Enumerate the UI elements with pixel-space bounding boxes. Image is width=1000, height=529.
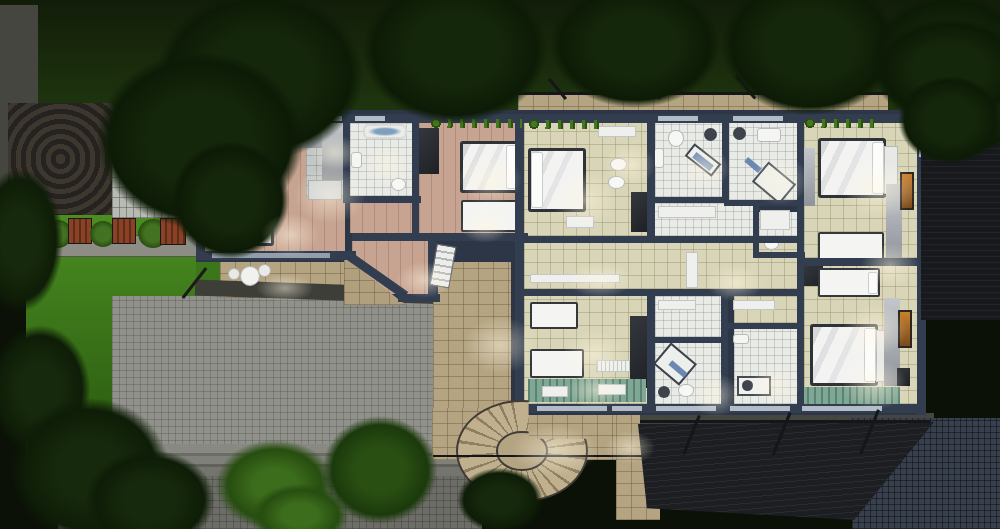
- tree-over-gazebo: [150, 120, 310, 280]
- bedroomJ-rug: [800, 387, 900, 405]
- window-bottom-5: [802, 406, 882, 411]
- wall-E-left: [797, 123, 804, 263]
- wall-bath1-bottom: [343, 196, 421, 203]
- roomF-wardrobe: [630, 316, 647, 388]
- bathI-sink: [733, 334, 749, 344]
- wall-B-C: [722, 123, 729, 203]
- wall-corridor-bottom: [519, 289, 803, 296]
- corridor-counter: [530, 274, 620, 283]
- wall-main-left: [515, 114, 524, 414]
- bathC-machine-1: [704, 128, 717, 141]
- bedroomJ-single-pillow: [868, 272, 878, 294]
- bathH-basin: [658, 386, 670, 398]
- bathB-sink: [654, 148, 664, 168]
- roomA-bidet: [608, 176, 625, 189]
- roomA-pillow: [531, 152, 543, 208]
- bedroomJ-picture: [898, 310, 912, 348]
- wall-rooms-bottom: [352, 233, 528, 241]
- wall-A-B: [647, 123, 655, 239]
- wall-G-bottom: [651, 337, 727, 343]
- bedroomE-picture: [900, 172, 914, 210]
- roomF-towel-1: [542, 386, 568, 397]
- wall-GH-right: [721, 289, 728, 407]
- window-bottom-2: [612, 406, 642, 411]
- roomA-table: [566, 216, 594, 228]
- terrace-rail-bottom: [433, 455, 648, 457]
- wcD-shelf: [760, 210, 790, 230]
- bedroomE-console: [804, 148, 815, 206]
- stub-shelf: [733, 300, 775, 310]
- wall-I-top: [727, 323, 797, 329]
- floor-plan-render: [0, 0, 1000, 529]
- roomF-single-bed-1: [530, 302, 578, 329]
- roomF-single-bed-2: [530, 349, 584, 378]
- bathG-shelf: [658, 300, 696, 310]
- bathC-machine-2: [733, 127, 746, 140]
- bathB-toilet: [668, 130, 684, 147]
- bedroomJ-pillow: [864, 328, 876, 382]
- roomA-toilet: [610, 158, 627, 171]
- window-bottom-3: [656, 406, 716, 411]
- wall-J-left: [797, 258, 804, 408]
- wall-corridor-top: [519, 236, 803, 243]
- wall-D-left: [753, 206, 759, 258]
- bathH-toilet: [678, 384, 694, 397]
- nook-floor: [350, 203, 412, 233]
- roomF-towel-2: [598, 384, 626, 395]
- roomF-radiator: [596, 360, 630, 372]
- bedroomE-pillow: [872, 142, 884, 194]
- bathI-basin: [742, 380, 753, 391]
- wall-F-right: [647, 289, 655, 407]
- window-bottom-4: [730, 406, 790, 411]
- bath1-toilet: [391, 178, 406, 191]
- bedroom2-single-bed: [461, 200, 522, 232]
- window-bottom-1: [537, 406, 607, 411]
- wall-C-bottom: [724, 200, 804, 206]
- corridor-table: [686, 252, 698, 288]
- nicheB-wardrobe: [658, 206, 716, 218]
- roomA-wardrobe: [631, 192, 647, 232]
- bedroomJ-speaker: [897, 368, 910, 386]
- wall-B-bottom: [647, 197, 729, 203]
- wall-E-J: [797, 258, 919, 266]
